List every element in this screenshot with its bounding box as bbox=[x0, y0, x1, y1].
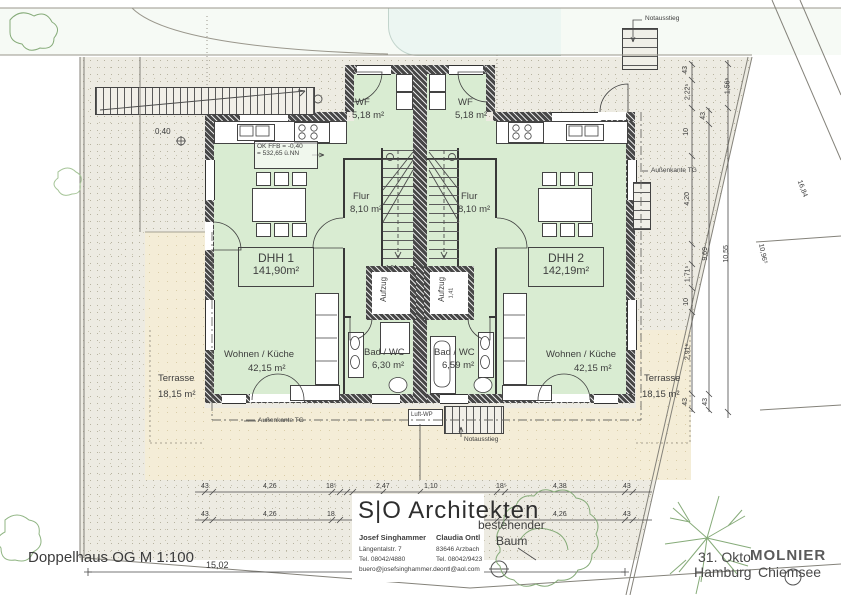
ffb-line2: = 532,65 ü.NN bbox=[257, 150, 315, 157]
dim-b2-1: 4,26 bbox=[263, 511, 277, 519]
dim-b1-5: 18⁵ bbox=[496, 483, 507, 491]
dim-ra-4: 1,71⁵ bbox=[684, 266, 692, 283]
stamp-location2: Chiemsee bbox=[758, 565, 821, 580]
dim-ra-2: 10 bbox=[683, 128, 691, 136]
street-lines bbox=[0, 8, 841, 112]
room-label-flur2: Flur bbox=[461, 192, 477, 202]
room-label-terrasse1: Terrasse bbox=[158, 374, 194, 384]
room-area-bad1: 6,30 m² bbox=[372, 361, 404, 371]
architect2-line3: ontl@aol.com bbox=[440, 566, 480, 573]
dim-b1-6: 4,38 bbox=[553, 483, 567, 491]
dim-ra-1: 2,22⁵ bbox=[684, 84, 692, 101]
dim-b1-1: 4,26 bbox=[263, 483, 277, 491]
room-label-bad1: Bad / WC bbox=[364, 348, 405, 358]
dim-b2-2: 18 bbox=[327, 511, 335, 519]
dim-rb-2: 43 bbox=[702, 398, 710, 406]
architect2-line1: 83646 Arzbach bbox=[436, 546, 479, 553]
room-label-wohnen1: Wohnen / Küche bbox=[224, 350, 294, 360]
dim-b1-0: 43 bbox=[201, 483, 209, 491]
room-label-terrasse2: Terrasse bbox=[644, 374, 680, 384]
room-label-aufzug1: Aufzug bbox=[380, 277, 389, 302]
dim-b1-7: 43 bbox=[623, 483, 631, 491]
tree-note-line1: bestehender bbox=[478, 519, 545, 532]
unit-label-box-dhh1: DHH 1 141,90m² bbox=[238, 247, 314, 287]
dim-b1-2: 18⁵ bbox=[326, 483, 337, 491]
dim-rc-1: 10,55 bbox=[723, 245, 731, 263]
unit-name-dhh1: DHH 1 bbox=[239, 252, 313, 265]
room-area-bad2: 6,59 m² bbox=[442, 361, 474, 371]
architect1-line1: Längentalstr. 7 bbox=[359, 546, 402, 553]
architect1-line3: buero@josefsinghammer.de bbox=[359, 566, 440, 573]
room-area-flur1: 8,10 m² bbox=[350, 205, 382, 215]
architect2-name: Claudia Ontl bbox=[436, 534, 480, 542]
room-label-flur1: Flur bbox=[353, 192, 369, 202]
dim-ra-5: 10 bbox=[683, 298, 691, 306]
room-area-terrasse1: 18,15 m² bbox=[158, 390, 196, 400]
room-label-wf1: WF bbox=[355, 98, 370, 108]
tree-note-line2: Baum bbox=[496, 535, 527, 548]
stair-detail bbox=[100, 90, 459, 258]
dim-ra-0: 43 bbox=[682, 66, 690, 74]
room-label-wf2: WF bbox=[458, 98, 473, 108]
floor-plan-sheet: WF 5,18 m² WF 5,18 m² Flur 8,10 m² Flur … bbox=[0, 0, 841, 595]
room-label-aufzug2: Aufzug bbox=[438, 277, 447, 302]
plan-title: Doppelhaus OG M 1:100 bbox=[28, 550, 194, 567]
room-area-flur2: 8,10 m² bbox=[458, 205, 490, 215]
notausstieg-top-label: Notausstieg bbox=[645, 15, 679, 22]
dim-rb-0: 43 bbox=[700, 112, 708, 120]
notausstieg-bottom-label: Notausstieg bbox=[464, 436, 498, 443]
dim-b1-3: 2,47 bbox=[376, 483, 390, 491]
stamp-name: MOLNIER bbox=[750, 548, 826, 565]
dim-core-0: 1,24 bbox=[386, 265, 397, 271]
luft-wp-label: Luft-WP bbox=[411, 412, 433, 419]
aussenkante-tg-right-label: Außenkante TG bbox=[651, 167, 697, 174]
room-area-terrasse2: 18,15 m² bbox=[642, 390, 680, 400]
architect1-line2: Tel. 08042/4880 bbox=[359, 556, 405, 563]
room-label-bad2: Bad / WC bbox=[434, 348, 475, 358]
dim-b1-4: 1,10 bbox=[424, 483, 438, 491]
unit-label-box-dhh2: DHH 2 142,19m² bbox=[528, 247, 604, 287]
dim-b2-4: 43 bbox=[623, 511, 631, 519]
dim-b2-3: 4,26 bbox=[553, 511, 567, 519]
dim-b2-0: 43 bbox=[201, 511, 209, 519]
dim-core-1: 1,41 bbox=[448, 288, 454, 299]
room-label-wohnen2: Wohnen / Küche bbox=[546, 350, 616, 360]
stamp-location1: Hamburg bbox=[694, 565, 752, 580]
dim-site-width: 15,02 bbox=[206, 561, 229, 571]
unit-area-dhh1: 141,90m² bbox=[239, 265, 313, 277]
unit-name-dhh2: DHH 2 bbox=[529, 252, 603, 265]
architect2-line2: Tel. 08042/9423 bbox=[436, 556, 482, 563]
room-area-wohnen2: 42,15 m² bbox=[574, 364, 612, 374]
level-040-label: 0,40 bbox=[155, 128, 171, 137]
dim-rc-0: 1,56⁵ bbox=[724, 78, 732, 95]
dim-ra-3: 4,20 bbox=[684, 192, 692, 206]
room-area-wf1: 5,18 m² bbox=[352, 111, 384, 121]
unit-area-dhh2: 142,19m² bbox=[529, 265, 603, 277]
dim-ra-7: 43 bbox=[682, 398, 690, 406]
dim-rb-1: 9,69 bbox=[702, 247, 710, 261]
ffb-line1: OK FFB = -0,40 bbox=[257, 143, 315, 150]
architect1-name: Josef Singhammer bbox=[359, 534, 426, 542]
dim-ra-6: 2,91⁵ bbox=[684, 344, 692, 361]
room-area-wohnen1: 42,15 m² bbox=[248, 364, 286, 374]
room-area-wf2: 5,18 m² bbox=[455, 111, 487, 121]
aussenkante-tg-left-label: Außenkante TG bbox=[258, 417, 304, 424]
ffb-level-box: OK FFB = -0,40 = 532,65 ü.NN bbox=[254, 141, 318, 169]
